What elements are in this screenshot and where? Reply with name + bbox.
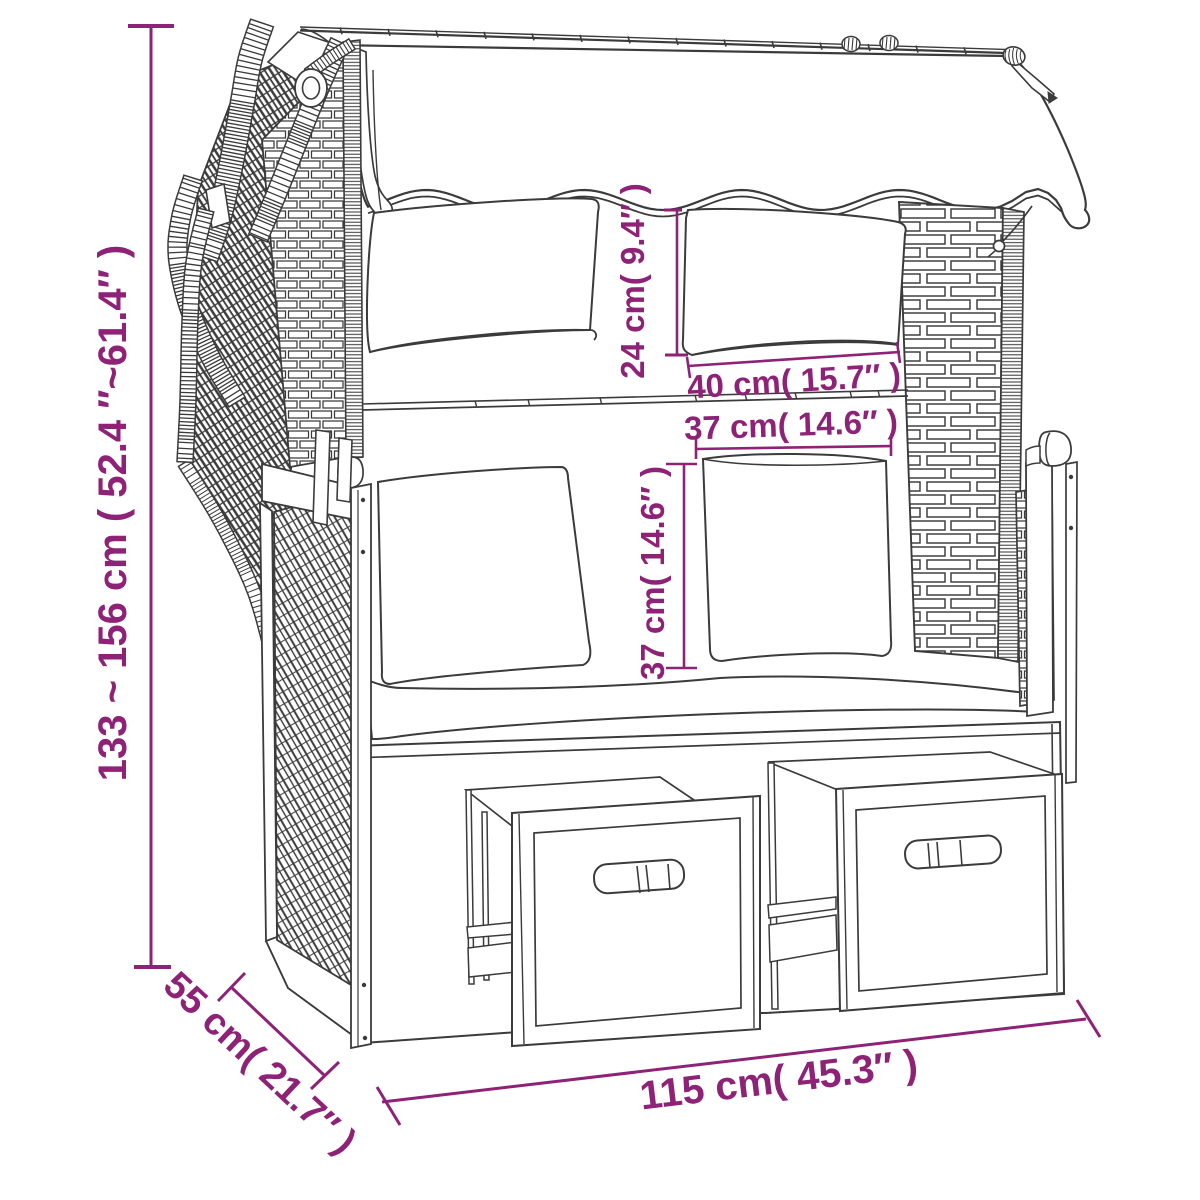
svg-text:37 cm( 14.6″ ): 37 cm( 14.6″ )	[634, 466, 671, 680]
svg-text:115 cm( 45.3″ ): 115 cm( 45.3″ )	[637, 1042, 920, 1119]
svg-text:24 cm( 9.4″ ): 24 cm( 9.4″ )	[614, 183, 651, 379]
svg-text:55 cm( 21.7″ ): 55 cm( 21.7″ )	[155, 964, 364, 1163]
svg-text:37 cm( 14.6″ ): 37 cm( 14.6″ )	[683, 402, 898, 446]
svg-text:133 ~ 156 cm ( 52.4 ″~61.4″ ): 133 ~ 156 cm ( 52.4 ″~61.4″ )	[91, 245, 135, 781]
